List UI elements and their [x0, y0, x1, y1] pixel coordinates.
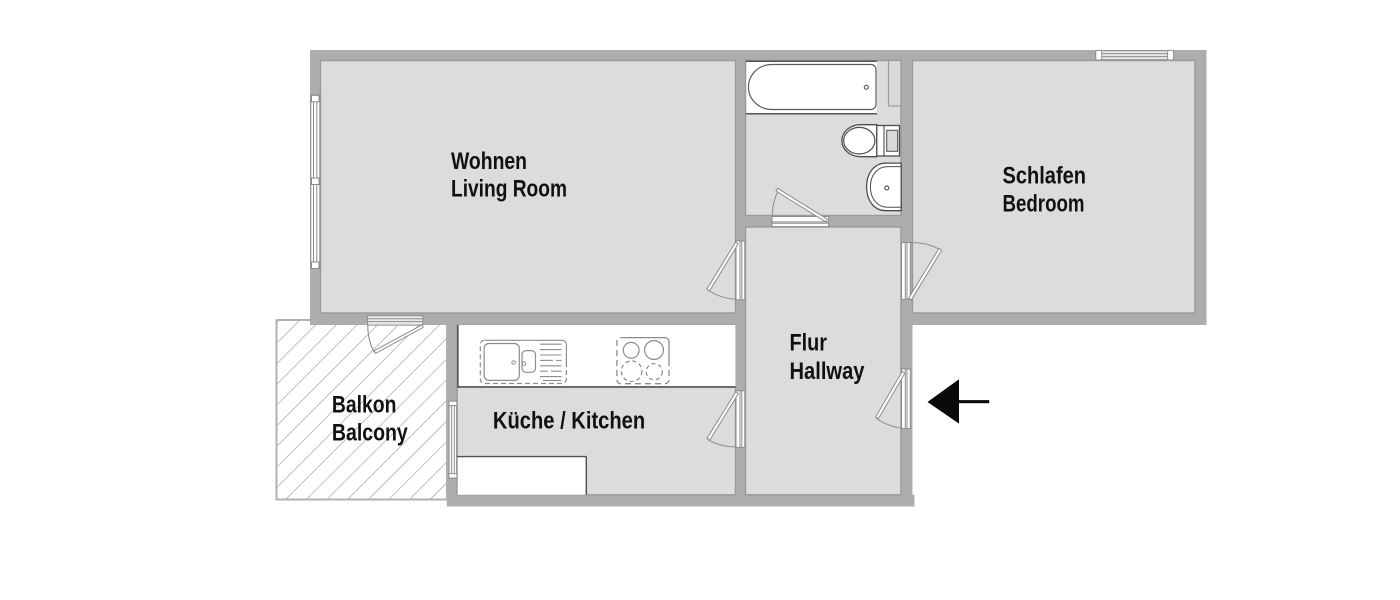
svg-text:Hallway: Hallway	[790, 358, 866, 385]
svg-text:Flur: Flur	[790, 330, 828, 357]
svg-text:Balkon: Balkon	[332, 392, 397, 419]
svg-text:Living Room: Living Room	[451, 176, 567, 203]
svg-text:Schlafen: Schlafen	[1003, 163, 1087, 190]
svg-text:Küche / Kitchen: Küche / Kitchen	[493, 407, 645, 434]
svg-text:Balcony: Balcony	[332, 419, 408, 446]
svg-text:Wohnen: Wohnen	[451, 148, 527, 175]
svg-text:Bedroom: Bedroom	[1003, 191, 1085, 218]
